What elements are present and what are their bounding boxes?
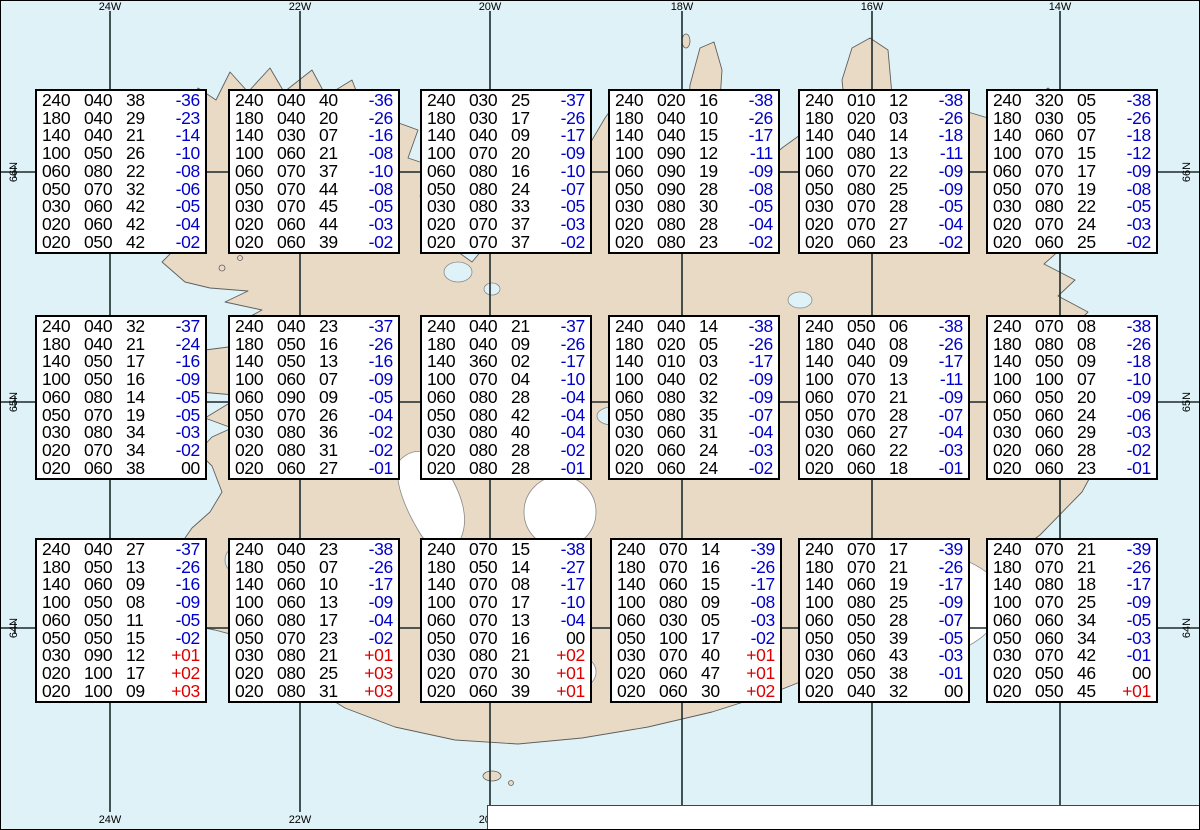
wind-dir-value: 060 (84, 460, 126, 478)
temp-value: -02 (162, 442, 200, 460)
wind-dir-value: 070 (469, 665, 511, 683)
forecast-row: 02007030+01 (427, 665, 585, 683)
wind-speed-value: 23 (1077, 460, 1113, 478)
wind-dir-value: 030 (659, 612, 701, 630)
temp-value: -02 (355, 442, 393, 460)
temp-value: -03 (737, 612, 775, 630)
temp-value: -03 (355, 216, 393, 234)
forecast-row: 02008028-04 (615, 216, 773, 234)
spot-forecast-box-15: 24007015-3818005014-2714007008-171000701… (420, 538, 592, 703)
forecast-row: 06006034-05 (993, 612, 1151, 630)
temp-value: -10 (355, 163, 393, 181)
wind-dir-value: 060 (277, 216, 319, 234)
flight-level-value: 020 (42, 683, 84, 701)
temp-value: +01 (737, 665, 775, 683)
wind-dir-value: 080 (657, 216, 699, 234)
temp-value: -08 (162, 163, 200, 181)
flight-level-value: 020 (42, 442, 84, 460)
flight-level-value: 020 (427, 683, 469, 701)
wind-dir-value: 090 (277, 389, 319, 407)
flight-level-value: 020 (42, 216, 84, 234)
forecast-row: 02010017+02 (42, 665, 200, 683)
flight-level-value: 020 (42, 234, 84, 252)
meridian-label-top-14W: 14W (1040, 1, 1080, 13)
temp-value: +03 (355, 665, 393, 683)
temp-value: -04 (547, 389, 585, 407)
wind-dir-value: 080 (469, 163, 511, 181)
wind-speed-value: 22 (889, 442, 925, 460)
wind-dir-value: 060 (659, 665, 701, 683)
temp-value: -02 (735, 234, 773, 252)
wind-speed-value: 20 (1077, 389, 1113, 407)
wind-dir-value: 070 (469, 234, 511, 252)
flight-level-value: 060 (805, 163, 847, 181)
wind-speed-value: 31 (319, 683, 355, 701)
temp-value: -05 (162, 389, 200, 407)
wind-speed-value: 25 (319, 665, 355, 683)
wind-speed-value: 46 (1077, 665, 1113, 683)
forecast-row: 02010009+03 (42, 683, 200, 701)
wind-speed-value: 30 (701, 683, 737, 701)
wind-speed-value: 25 (1077, 234, 1113, 252)
forecast-row: 02006023-02 (805, 234, 963, 252)
temp-value: -03 (547, 216, 585, 234)
parallel-label-right-66N: 66N (1181, 155, 1193, 189)
flight-level-value: 020 (805, 460, 847, 478)
island-grimsey (682, 34, 690, 48)
temp-value: -01 (925, 665, 963, 683)
forecast-row: 0200403200 (805, 683, 963, 701)
flight-level-value: 060 (805, 612, 847, 630)
forecast-row: 06007013-04 (427, 612, 585, 630)
forecast-row: 06008028-04 (427, 389, 585, 407)
flight-level-value: 060 (427, 612, 469, 630)
forecast-row: 02005042-02 (42, 234, 200, 252)
wind-speed-value: 19 (699, 163, 735, 181)
flight-level-value: 020 (615, 234, 657, 252)
flight-level-value: 020 (427, 234, 469, 252)
temp-value: -04 (925, 216, 963, 234)
temp-value: -02 (925, 234, 963, 252)
flight-level-value: 060 (42, 612, 84, 630)
temp-value: -10 (547, 163, 585, 181)
forecast-row: 02006030+02 (617, 683, 775, 701)
wind-dir-value: 050 (847, 665, 889, 683)
wind-speed-value: 17 (319, 612, 355, 630)
temp-value: -09 (1113, 163, 1151, 181)
wind-speed-value: 45 (1077, 683, 1113, 701)
spot-forecast-box-6: 24032005-3818003005-2614006007-181000701… (986, 89, 1158, 254)
forecast-row: 02006024-02 (615, 460, 773, 478)
wind-speed-value: 17 (1077, 163, 1113, 181)
temp-value: -03 (735, 442, 773, 460)
flight-level-value: 060 (42, 389, 84, 407)
flight-level-value: 060 (805, 389, 847, 407)
forecast-row: 02006022-03 (805, 442, 963, 460)
spot-forecast-box-12: 24007008-3818008008-2614005009-181001000… (986, 315, 1158, 480)
temp-value: -09 (735, 163, 773, 181)
wind-speed-value: 16 (511, 163, 547, 181)
forecast-row: 02006044-03 (235, 216, 393, 234)
wind-speed-value: 28 (511, 460, 547, 478)
wind-dir-value: 070 (469, 612, 511, 630)
wind-dir-value: 060 (847, 234, 889, 252)
spot-forecast-box-17: 24007017-3918007021-2614006019-171000802… (798, 538, 970, 703)
flight-level-value: 020 (235, 442, 277, 460)
wind-speed-value: 28 (889, 612, 925, 630)
flight-level-value: 020 (805, 665, 847, 683)
parallel-label-right-65N: 65N (1181, 385, 1193, 419)
wind-speed-value: 17 (126, 665, 162, 683)
temp-value: -09 (925, 389, 963, 407)
forecast-row: 02008028-01 (427, 460, 585, 478)
wind-speed-value: 34 (1077, 612, 1113, 630)
forecast-row: 02006018-01 (805, 460, 963, 478)
temp-value: -05 (162, 612, 200, 630)
flight-level-value: 020 (42, 460, 84, 478)
forecast-row: 06007037-10 (235, 163, 393, 181)
temp-value: -09 (925, 163, 963, 181)
forecast-row: 06007017-09 (993, 163, 1151, 181)
temp-value: -04 (735, 216, 773, 234)
wind-dir-value: 050 (84, 612, 126, 630)
forecast-row: 06008017-04 (235, 612, 393, 630)
wind-speed-value: 39 (511, 683, 547, 701)
wind-speed-value: 28 (511, 389, 547, 407)
forecast-row: 06007022-09 (805, 163, 963, 181)
island-breidafjordur-2 (238, 256, 243, 261)
flight-level-value: 060 (615, 163, 657, 181)
flight-level-value: 020 (805, 216, 847, 234)
wind-dir-value: 100 (84, 665, 126, 683)
spot-forecast-box-7: 24004032-3718004021-2414005017-161000501… (35, 315, 207, 480)
wind-dir-value: 080 (657, 234, 699, 252)
wind-speed-value: 24 (699, 442, 735, 460)
flight-level-value: 020 (993, 683, 1035, 701)
wind-dir-value: 080 (277, 665, 319, 683)
temp-value: -03 (925, 442, 963, 460)
wind-dir-value: 060 (657, 460, 699, 478)
flight-level-value: 020 (427, 442, 469, 460)
forecast-row: 02007034-02 (42, 442, 200, 460)
flight-level-value: 060 (235, 163, 277, 181)
forecast-row: 06005028-07 (805, 612, 963, 630)
spot-forecast-box-2: 24004040-3618004020-2614003007-161000602… (228, 89, 400, 254)
temp-value: -02 (355, 234, 393, 252)
temp-value: -02 (1113, 234, 1151, 252)
wind-speed-value: 13 (511, 612, 547, 630)
flight-level-value: 020 (615, 460, 657, 478)
parallel-label-left-64N: 64N (8, 611, 20, 645)
temp-value: +03 (355, 683, 393, 701)
wind-dir-value: 070 (847, 163, 889, 181)
temp-value: -05 (1113, 612, 1151, 630)
wind-speed-value: 32 (889, 683, 925, 701)
spot-forecast-box-13: 24004027-3718005013-2614006009-161000500… (35, 538, 207, 703)
wind-speed-value: 37 (511, 216, 547, 234)
meridian-label-bottom-22W: 22W (280, 814, 320, 826)
wind-dir-value: 060 (1035, 234, 1077, 252)
parallel-label-right-64N: 64N (1181, 611, 1193, 645)
temp-value: +02 (737, 683, 775, 701)
forecast-row: 06007021-09 (805, 389, 963, 407)
temp-value: -03 (1113, 216, 1151, 234)
temp-value: -04 (162, 216, 200, 234)
wind-speed-value: 09 (319, 389, 355, 407)
forecast-row: 0200603800 (42, 460, 200, 478)
wind-dir-value: 070 (469, 216, 511, 234)
temp-value: -07 (925, 612, 963, 630)
spot-chart-image: 24W24W22W22W20W20W18W18W16W16W14W14W66N6… (0, 0, 1200, 830)
wind-speed-value: 38 (126, 460, 162, 478)
wind-dir-value: 070 (1035, 163, 1077, 181)
wind-dir-value: 050 (1035, 665, 1077, 683)
spot-forecast-box-4: 24002016-3818004010-2614004015-171000901… (608, 89, 780, 254)
temp-value: -04 (547, 612, 585, 630)
flight-level-value: 020 (805, 683, 847, 701)
flight-level-value: 020 (235, 665, 277, 683)
wind-dir-value: 060 (277, 234, 319, 252)
forecast-row: 02006042-04 (42, 216, 200, 234)
flight-level-value: 060 (993, 612, 1035, 630)
wind-dir-value: 060 (84, 216, 126, 234)
spot-forecast-box-18: 24007021-3918007021-2614008018-171000702… (986, 538, 1158, 703)
forecast-row: 02006023-01 (993, 460, 1151, 478)
flight-level-value: 060 (993, 163, 1035, 181)
wind-dir-value: 060 (1035, 442, 1077, 460)
wind-dir-value: 080 (469, 389, 511, 407)
wind-dir-value: 080 (277, 442, 319, 460)
wind-dir-value: 050 (84, 234, 126, 252)
wind-dir-value: 070 (84, 442, 126, 460)
wind-dir-value: 060 (657, 442, 699, 460)
wind-dir-value: 070 (847, 389, 889, 407)
temp-value: -05 (355, 389, 393, 407)
forecast-row: 02007024-03 (993, 216, 1151, 234)
wind-speed-value: 39 (319, 234, 355, 252)
meridian-label-top-16W: 16W (852, 1, 892, 13)
wind-speed-value: 24 (699, 460, 735, 478)
wind-speed-value: 23 (889, 234, 925, 252)
flight-level-value: 020 (427, 216, 469, 234)
wind-dir-value: 100 (84, 683, 126, 701)
flight-level-value: 020 (235, 234, 277, 252)
forecast-row: 06009009-05 (235, 389, 393, 407)
temp-value: 00 (1113, 665, 1151, 683)
temp-value: -02 (547, 234, 585, 252)
temp-value: 00 (925, 683, 963, 701)
wind-speed-value: 38 (889, 665, 925, 683)
island-vestmannaeyjar (483, 771, 501, 781)
flight-level-value: 060 (427, 163, 469, 181)
wind-speed-value: 28 (699, 216, 735, 234)
parallel-label-left-65N: 65N (8, 385, 20, 419)
flight-level-value: 020 (993, 234, 1035, 252)
spot-forecast-box-3: 24003025-3718003017-2614004009-171000702… (420, 89, 592, 254)
meridian-label-top-22W: 22W (280, 1, 320, 13)
wind-speed-value: 44 (319, 216, 355, 234)
flight-level-value: 020 (615, 216, 657, 234)
flight-level-value: 020 (235, 683, 277, 701)
forecast-row: 02006027-01 (235, 460, 393, 478)
spot-forecast-box-1: 24004038-3618004029-2314004021-141000502… (35, 89, 207, 254)
temp-value: -09 (735, 389, 773, 407)
temp-value: +03 (162, 683, 200, 701)
meridian-label-top-18W: 18W (662, 1, 702, 13)
forecast-row: 06008014-05 (42, 389, 200, 407)
forecast-row: 06003005-03 (617, 612, 775, 630)
forecast-row: 06008032-09 (615, 389, 773, 407)
wind-speed-value: 14 (126, 389, 162, 407)
wind-dir-value: 060 (847, 460, 889, 478)
forecast-row: 06008022-08 (42, 163, 200, 181)
forecast-row: 02008028-02 (427, 442, 585, 460)
flight-level-value: 020 (805, 234, 847, 252)
wind-speed-value: 31 (319, 442, 355, 460)
wind-dir-value: 060 (1035, 460, 1077, 478)
forecast-row: 02005038-01 (805, 665, 963, 683)
wind-dir-value: 060 (847, 442, 889, 460)
forecast-row: 02007037-02 (427, 234, 585, 252)
wind-dir-value: 040 (847, 683, 889, 701)
forecast-row: 02006047+01 (617, 665, 775, 683)
wind-dir-value: 080 (277, 612, 319, 630)
wind-speed-value: 30 (511, 665, 547, 683)
flight-level-value: 020 (42, 665, 84, 683)
wind-speed-value: 22 (889, 163, 925, 181)
temp-value: 00 (162, 460, 200, 478)
spot-forecast-box-9: 24004021-3718004009-2614036002-171000700… (420, 315, 592, 480)
wind-dir-value: 080 (657, 389, 699, 407)
temp-value: -02 (1113, 442, 1151, 460)
temp-value: -09 (1113, 389, 1151, 407)
wind-speed-value: 37 (511, 234, 547, 252)
flight-level-value: 020 (235, 460, 277, 478)
wind-speed-value: 18 (889, 460, 925, 478)
flight-level-value: 020 (993, 216, 1035, 234)
wind-dir-value: 060 (1035, 612, 1077, 630)
temp-value: -02 (735, 460, 773, 478)
temp-value: +01 (547, 665, 585, 683)
spot-forecast-box-8: 24004023-3718005016-2614005013-161000600… (228, 315, 400, 480)
forecast-row: 02006025-02 (993, 234, 1151, 252)
island-small (509, 781, 514, 786)
wind-dir-value: 070 (847, 216, 889, 234)
flight-level-value: 020 (805, 442, 847, 460)
wind-speed-value: 47 (701, 665, 737, 683)
flight-level-value: 020 (615, 442, 657, 460)
wind-speed-value: 37 (319, 163, 355, 181)
forecast-row: 02008031-02 (235, 442, 393, 460)
wind-dir-value: 050 (847, 612, 889, 630)
flight-level-value: 060 (427, 389, 469, 407)
island-breidafjordur (219, 265, 225, 271)
flight-level-value: 060 (235, 389, 277, 407)
spot-forecast-box-11: 24005006-3818004008-2614004009-171000701… (798, 315, 970, 480)
wind-speed-value: 09 (126, 683, 162, 701)
forecast-row: 0200504600 (993, 665, 1151, 683)
forecast-row: 02008025+03 (235, 665, 393, 683)
wind-dir-value: 050 (1035, 389, 1077, 407)
wind-dir-value: 070 (277, 163, 319, 181)
caption-bar: Spot Chart: FL Dir KT °C UWC/IG-IS: IT: … (487, 805, 1200, 829)
forecast-row: 02008023-02 (615, 234, 773, 252)
wind-dir-value: 060 (659, 683, 701, 701)
wind-speed-value: 32 (699, 389, 735, 407)
wind-dir-value: 080 (84, 389, 126, 407)
flight-level-value: 060 (993, 389, 1035, 407)
temp-value: +02 (162, 665, 200, 683)
lake-myvatn (788, 292, 812, 308)
spot-forecast-box-5: 24001012-3818002003-2614004014-181000801… (798, 89, 970, 254)
wind-speed-value: 28 (511, 442, 547, 460)
meridian-label-top-24W: 24W (90, 1, 130, 13)
flight-level-value: 020 (427, 665, 469, 683)
wind-dir-value: 080 (469, 460, 511, 478)
wind-dir-value: 080 (84, 163, 126, 181)
parallel-label-left-66N: 66N (8, 155, 20, 189)
flight-level-value: 020 (235, 216, 277, 234)
flight-level-value: 060 (42, 163, 84, 181)
wind-dir-value: 060 (277, 460, 319, 478)
forecast-row: 02005045+01 (993, 683, 1151, 701)
temp-value: +01 (1113, 683, 1151, 701)
wind-speed-value: 05 (701, 612, 737, 630)
flight-level-value: 060 (235, 612, 277, 630)
flight-level-value: 020 (617, 665, 659, 683)
wind-speed-value: 27 (319, 460, 355, 478)
flight-level-value: 020 (993, 665, 1035, 683)
wind-speed-value: 34 (126, 442, 162, 460)
wind-speed-value: 42 (126, 234, 162, 252)
wind-speed-value: 24 (1077, 216, 1113, 234)
forecast-row: 02006039+01 (427, 683, 585, 701)
temp-value: -01 (547, 460, 585, 478)
wind-dir-value: 080 (277, 683, 319, 701)
wind-dir-value: 060 (469, 683, 511, 701)
spot-forecast-box-14: 24004023-3818005007-2614006010-171000601… (228, 538, 400, 703)
flight-level-value: 060 (617, 612, 659, 630)
spot-forecast-box-16: 24007014-3918007016-2614006015-171000800… (610, 538, 782, 703)
temp-value: -01 (925, 460, 963, 478)
wind-dir-value: 090 (657, 163, 699, 181)
temp-value: -01 (355, 460, 393, 478)
wind-speed-value: 42 (126, 216, 162, 234)
temp-value: +01 (547, 683, 585, 701)
forecast-row: 02006024-03 (615, 442, 773, 460)
forecast-row: 02007027-04 (805, 216, 963, 234)
temp-value: -01 (1113, 460, 1151, 478)
forecast-row: 06008016-10 (427, 163, 585, 181)
forecast-row: 06005020-09 (993, 389, 1151, 407)
forecast-row: 02008031+03 (235, 683, 393, 701)
flight-level-value: 060 (615, 389, 657, 407)
forecast-row: 02007037-03 (427, 216, 585, 234)
spot-forecast-box-10: 24004014-3818002005-2614001003-171000400… (608, 315, 780, 480)
wind-speed-value: 27 (889, 216, 925, 234)
lake-small-north (484, 283, 500, 295)
temp-value: -02 (162, 234, 200, 252)
wind-speed-value: 11 (126, 612, 162, 630)
wind-speed-value: 22 (126, 163, 162, 181)
flight-level-value: 020 (427, 460, 469, 478)
temp-value: -02 (547, 442, 585, 460)
forecast-row: 02006039-02 (235, 234, 393, 252)
forecast-row: 02006028-02 (993, 442, 1151, 460)
forecast-row: 06009019-09 (615, 163, 773, 181)
temp-value: -04 (355, 612, 393, 630)
forecast-row: 06005011-05 (42, 612, 200, 630)
